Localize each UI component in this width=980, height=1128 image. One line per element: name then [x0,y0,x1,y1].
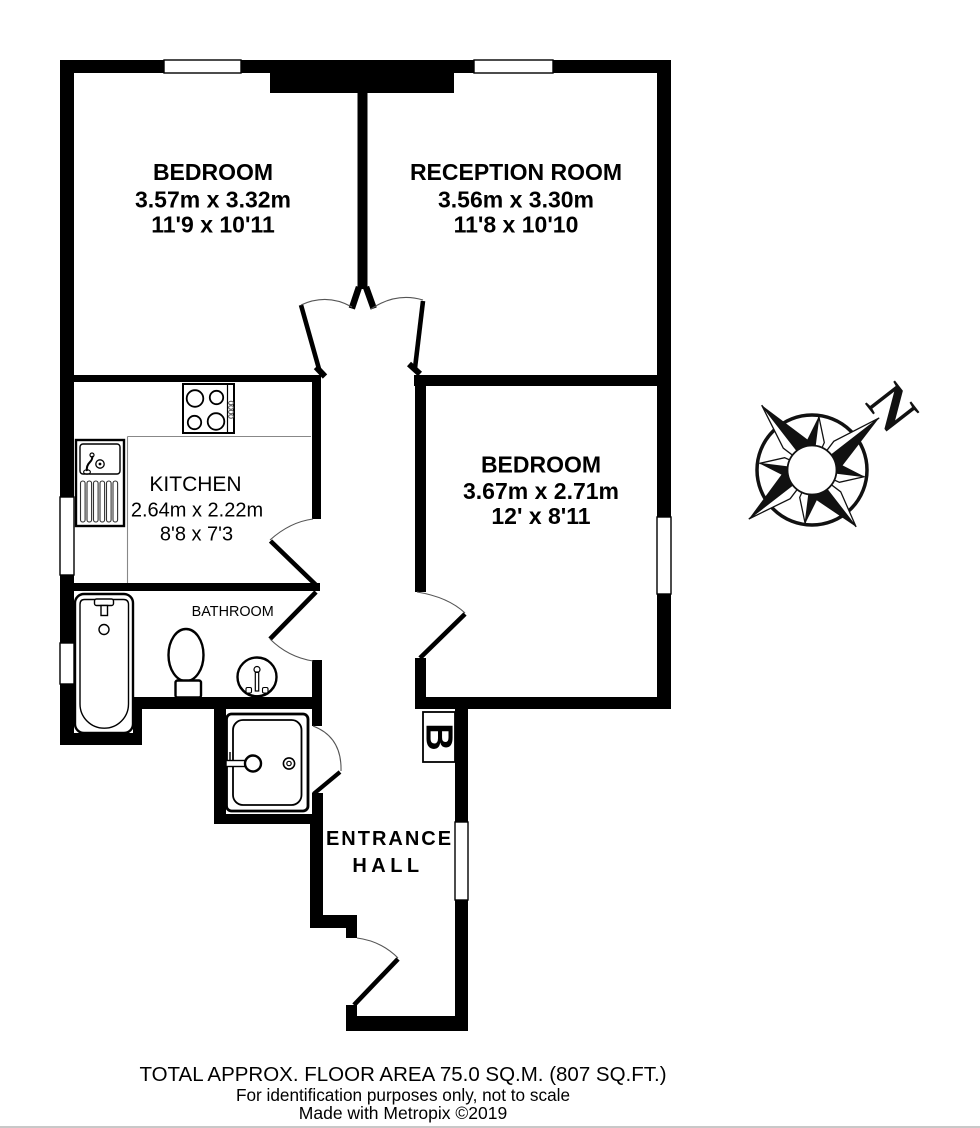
svg-text:8'8 x 7'3: 8'8 x 7'3 [160,524,233,546]
svg-text:HALL: HALL [352,855,423,877]
svg-text:ENTRANCE: ENTRANCE [326,828,453,850]
svg-text:For identification purposes on: For identification purposes only, not to… [236,1085,570,1105]
svg-text:BATHROOM: BATHROOM [192,604,274,620]
svg-text:TOTAL APPROX. FLOOR AREA 75.0: TOTAL APPROX. FLOOR AREA 75.0 SQ.M. (807… [139,1063,666,1086]
svg-text:3.56m x 3.30m: 3.56m x 3.30m [438,187,594,213]
svg-text:BEDROOM: BEDROOM [153,159,273,185]
svg-text:3.67m x 2.71m: 3.67m x 2.71m [463,478,619,504]
svg-text:11'9 x 10'11: 11'9 x 10'11 [151,212,275,238]
svg-text:B: B [418,723,460,750]
svg-text:12' x 8'11: 12' x 8'11 [491,503,590,529]
svg-text:2.64m x 2.22m: 2.64m x 2.22m [131,500,263,522]
svg-text:11'8 x 10'10: 11'8 x 10'10 [454,212,579,238]
svg-text:BEDROOM: BEDROOM [481,452,601,478]
svg-text:Made with Metropix ©2019: Made with Metropix ©2019 [299,1103,507,1123]
svg-text:RECEPTION ROOM: RECEPTION ROOM [410,159,622,185]
svg-text:3.57m x 3.32m: 3.57m x 3.32m [135,187,291,213]
svg-text:KITCHEN: KITCHEN [149,473,241,496]
